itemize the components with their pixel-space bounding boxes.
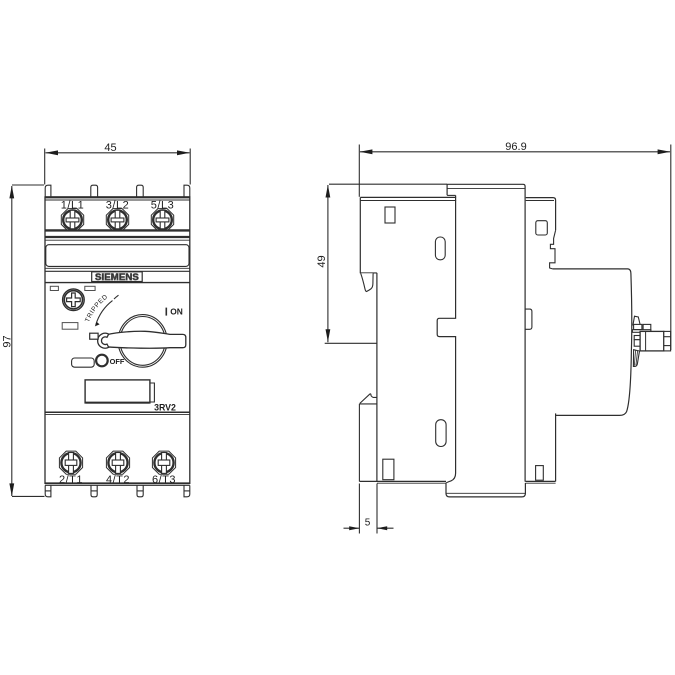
svg-text:97: 97 — [1, 335, 13, 347]
svg-text:5: 5 — [365, 518, 371, 529]
svg-text:3RV2: 3RV2 — [154, 403, 176, 413]
svg-text:SIEMENS: SIEMENS — [95, 272, 139, 283]
svg-text:OFF: OFF — [110, 357, 125, 366]
svg-text:49: 49 — [316, 255, 328, 267]
svg-text:45: 45 — [104, 142, 116, 154]
svg-text:96.9: 96.9 — [505, 141, 526, 153]
svg-text:ON: ON — [170, 306, 183, 316]
svg-text:TRIPPED: TRIPPED — [84, 293, 109, 323]
